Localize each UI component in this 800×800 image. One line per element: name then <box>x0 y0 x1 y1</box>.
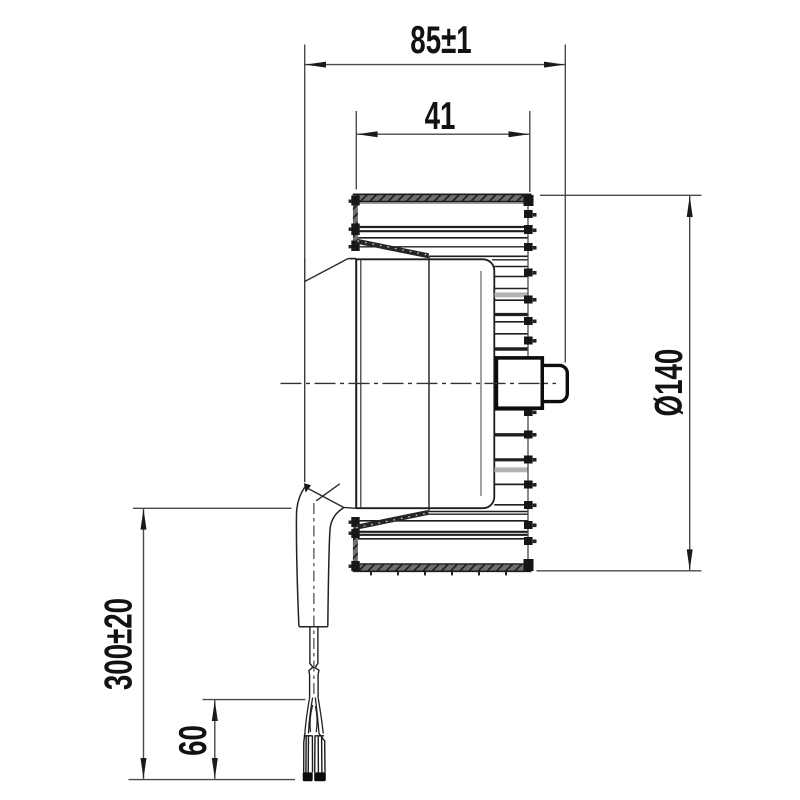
svg-text:41: 41 <box>425 94 456 138</box>
svg-text:Ø140: Ø140 <box>647 349 691 417</box>
svg-text:60: 60 <box>171 725 215 756</box>
svg-text:85±1: 85±1 <box>410 18 471 62</box>
svg-text:300±20: 300±20 <box>97 598 141 690</box>
